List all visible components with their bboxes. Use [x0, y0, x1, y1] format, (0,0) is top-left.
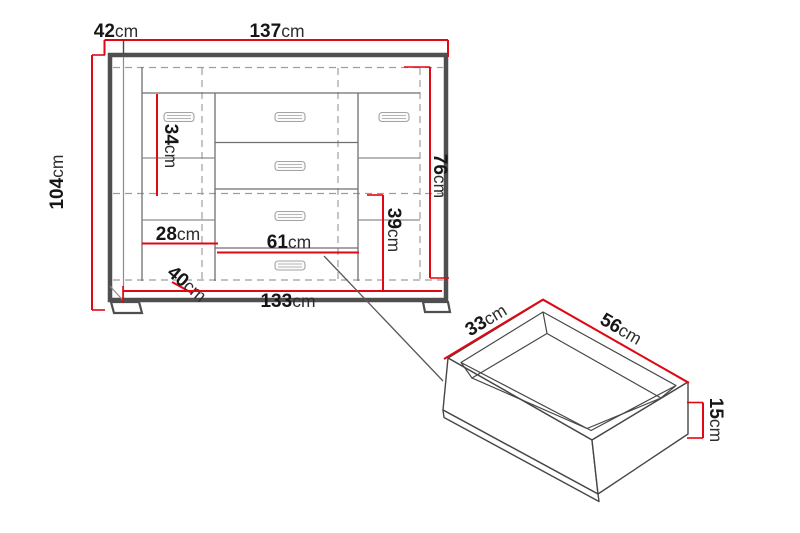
furniture-dimension-diagram: 42cm 137cm 104cm 34cm 28cm 61cm 39cm 76c… — [0, 0, 800, 533]
cabinet-front-view — [110, 55, 450, 313]
drawer-4-handle-icon — [275, 261, 305, 270]
door-left-handle-icon — [164, 113, 194, 122]
dim-label-depth-top: 42cm — [94, 21, 138, 42]
drawer-3-handle-icon — [275, 212, 305, 221]
technical-drawing-canvas: 42cm 137cm 104cm 34cm 28cm 61cm 39cm 76c… — [0, 0, 800, 533]
dim-label-width-bottom: 133cm — [260, 291, 315, 312]
dim-label-inner-height-76: 76cm — [429, 154, 450, 198]
drawer-detail-view: 33cm 56cm 15cm — [443, 300, 726, 502]
cabinet-right-foot — [423, 302, 450, 312]
cabinet-left-foot — [111, 302, 142, 313]
dim-label-shelf-width-28: 28cm — [156, 224, 200, 245]
dim-label-inner-height-39: 39cm — [383, 208, 404, 252]
drawer-1-handle-icon — [275, 113, 305, 122]
dim-label-inner-height-34: 34cm — [160, 124, 181, 168]
dim-label-drawer-height-15: 15cm — [705, 398, 726, 442]
drawer-2-handle-icon — [275, 162, 305, 171]
door-right-handle-icon — [379, 113, 409, 122]
dim-label-height-left: 104cm — [47, 154, 68, 209]
dim-label-width-top: 137cm — [249, 21, 304, 42]
dim-label-drawer-width-61: 61cm — [267, 232, 311, 253]
